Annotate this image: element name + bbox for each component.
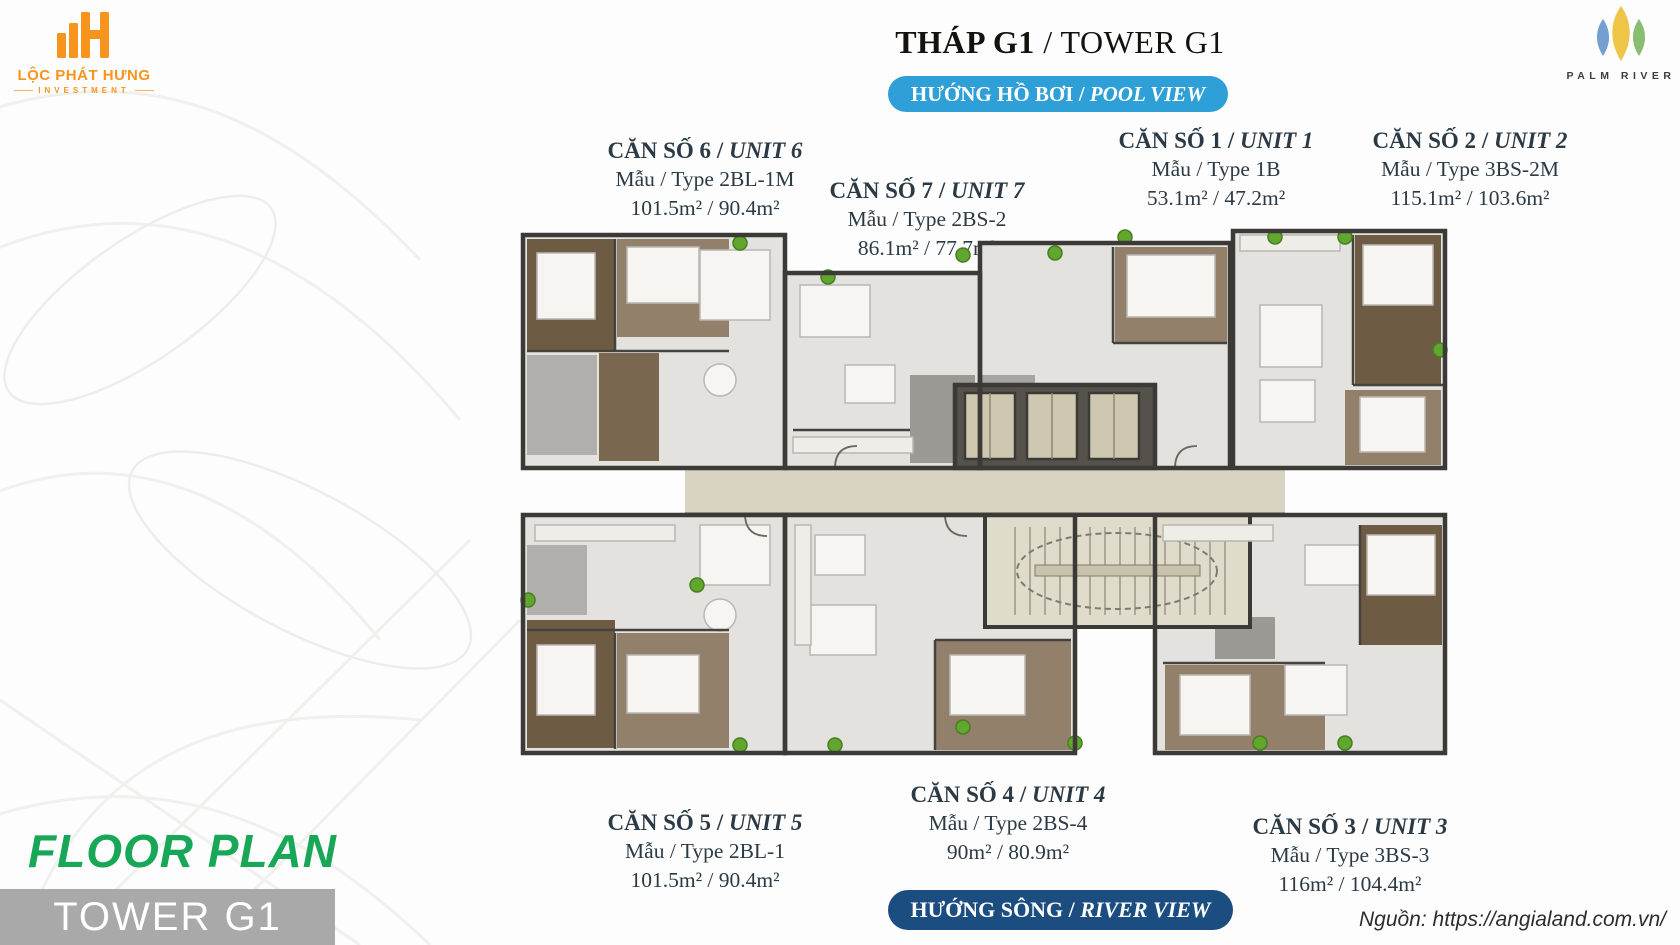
unit-area: 101.5m² / 90.4m² [545, 866, 865, 895]
unit-type: Mẫu / Type 3BS-3 [1190, 841, 1510, 870]
unit-type: Mẫu / Type 3BS-2M [1310, 155, 1630, 184]
unit-area: 115.1m² / 103.6m² [1310, 184, 1630, 213]
unit-name: CĂN SỐ 6 / UNIT 6 [545, 136, 865, 165]
loc-phat-hung-icon [53, 6, 115, 60]
title-en: TOWER G1 [1061, 24, 1225, 60]
unit-name: CĂN SỐ 7 / UNIT 7 [767, 176, 1087, 205]
palm-river-name: PALM RIVER [1562, 70, 1680, 82]
unit-area: 90m² / 80.9m² [848, 838, 1168, 867]
corridor [685, 468, 1285, 514]
tower-name-box: TOWER G1 [0, 889, 335, 945]
palm-watermark [0, 0, 540, 945]
elevator-core [955, 385, 1155, 468]
unit-name: CĂN SỐ 3 / UNIT 3 [1190, 812, 1510, 841]
unit-4-label: CĂN SỐ 4 / UNIT 4 Mẫu / Type 2BS-4 90m² … [848, 780, 1168, 867]
unit-type: Mẫu / Type 2BS-4 [848, 809, 1168, 838]
slide: LỘC PHÁT HƯNG INVESTMENT PALM RIVER THÁP… [0, 0, 1680, 945]
palm-river-logo: PALM RIVER [1562, 4, 1680, 82]
unit-area: 116m² / 104.4m² [1190, 870, 1510, 899]
unit-type: Mẫu / Type 2BL-1 [545, 837, 865, 866]
dash-left [14, 90, 33, 91]
title-vi: THÁP G1 [895, 24, 1035, 60]
floor-plan-drawing [515, 225, 1450, 770]
unit-3-label: CĂN SỐ 3 / UNIT 3 Mẫu / Type 3BS-3 116m²… [1190, 812, 1510, 899]
floor-plan-heading: FLOOR PLAN [28, 824, 337, 878]
river-view-badge: HƯỚNG SÔNG / RIVER VIEW [888, 890, 1233, 930]
unit-2-label: CĂN SỐ 2 / UNIT 2 Mẫu / Type 3BS-2M 115.… [1310, 126, 1630, 213]
pool-view-badge: HƯỚNG HỒ BƠI / POOL VIEW [888, 76, 1228, 112]
dash-right [135, 90, 154, 91]
palm-river-leaves-icon [1588, 4, 1654, 62]
unit-name: CĂN SỐ 4 / UNIT 4 [848, 780, 1168, 809]
loc-phat-hung-logo: LỘC PHÁT HƯNG INVESTMENT [14, 6, 154, 95]
unit-name: CĂN SỐ 2 / UNIT 2 [1310, 126, 1630, 155]
page-title: THÁP G1 / TOWER G1 [760, 24, 1360, 61]
unit-name: CĂN SỐ 5 / UNIT 5 [545, 808, 865, 837]
source-credit: Nguồn: https://angialand.com.vn/ [1359, 908, 1666, 932]
loc-phat-hung-name: LỘC PHÁT HƯNG [14, 67, 154, 84]
loc-phat-hung-subtitle: INVESTMENT [38, 86, 130, 95]
unit-5-label: CĂN SỐ 5 / UNIT 5 Mẫu / Type 2BL-1 101.5… [545, 808, 865, 895]
